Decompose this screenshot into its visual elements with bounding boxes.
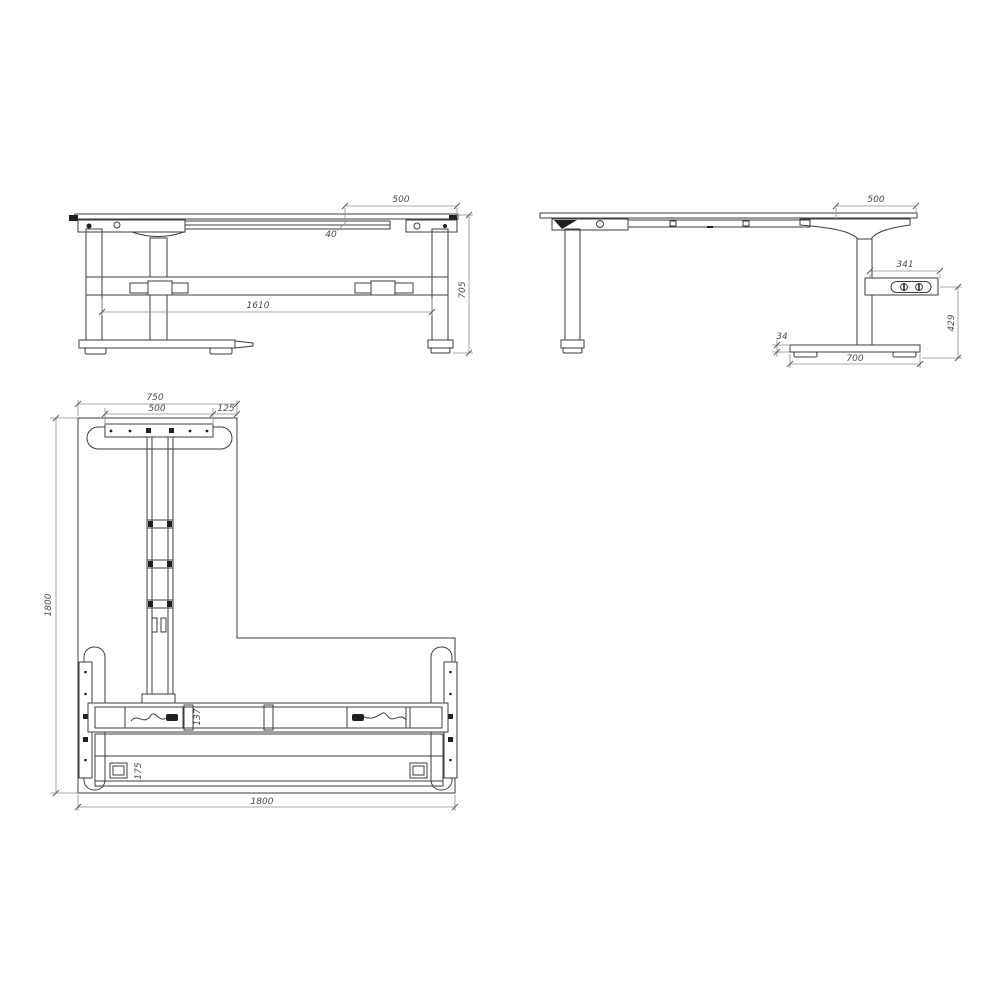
dim-label-plan-rail: 175 [134, 762, 144, 779]
plan-dim-width: 1800 [75, 795, 458, 811]
front-dim-frame: 40 [325, 221, 347, 240]
screw-dot-icon [83, 737, 88, 742]
side-top-frame [552, 219, 910, 239]
screw-dot-icon [129, 430, 132, 433]
front-desktop [75, 214, 458, 219]
plan-column-divider [147, 560, 173, 568]
plan-rail-bracket [110, 763, 127, 778]
side-dim-box-floor: 429 [922, 284, 962, 361]
screw-hole-icon [597, 221, 604, 228]
screw-dot-icon [448, 737, 453, 742]
plan-column-clip [161, 618, 166, 632]
plan-column-clip [152, 618, 157, 632]
screw-dot-icon [84, 759, 87, 762]
plan-rail-bracket [410, 763, 427, 778]
dim-label-side-box-floor: 429 [947, 314, 957, 331]
dim-label-plan-offset: 125 [217, 404, 234, 414]
plan-main-beam: 137 [88, 703, 448, 732]
dim-label-plan-width: 1800 [251, 797, 274, 807]
screw-dot-icon [169, 428, 174, 433]
side-leg-left [565, 229, 580, 340]
plan-dim-bracket: 500 [102, 404, 216, 425]
front-top-frame [78, 220, 457, 237]
front-dim-span: 1610 [99, 298, 435, 316]
screw-dot-icon [87, 224, 92, 229]
dim-label-side-foot-length: 700 [846, 354, 863, 364]
front-corner-mark-left [69, 215, 78, 221]
side-dim-box-width: 341 [867, 260, 943, 278]
front-dim-overhang: 500 [342, 195, 460, 220]
side-view: 500 341 429 34 [540, 195, 962, 368]
drawing-canvas: 500 40 1610 705 [0, 0, 1000, 1000]
screw-dot-icon [443, 224, 447, 228]
side-control-box [865, 278, 938, 295]
plan-return-column [142, 437, 175, 703]
screw-dot-icon [189, 430, 192, 433]
plan-column-cap [142, 694, 175, 703]
front-crossbar [86, 277, 448, 295]
screw-dot-icon [110, 430, 113, 433]
plan-desktop-outline [78, 418, 455, 793]
dim-label-side-box-width: 341 [896, 260, 913, 270]
front-foot-left [79, 340, 253, 354]
dim-label-side-foot-height: 34 [776, 332, 788, 342]
screw-dot-icon [449, 693, 452, 696]
plan-column-divider [147, 600, 173, 608]
screw-hole-icon [114, 222, 120, 228]
screw-hole-icon [414, 223, 420, 229]
dim-label-plan-beam: 137 [193, 708, 203, 725]
screw-dot-icon [83, 714, 88, 719]
dim-label-front-frame: 40 [325, 230, 337, 240]
dim-label-front-height: 705 [458, 281, 468, 298]
side-leg-mount-curve [800, 219, 910, 239]
side-desktop [540, 213, 917, 218]
side-bracket-wedge [554, 220, 577, 229]
dim-label-plan-arm-width: 750 [146, 393, 163, 403]
dim-label-front-span: 1610 [247, 301, 270, 311]
front-foot-right [428, 340, 453, 353]
side-foot-left [561, 340, 584, 353]
plan-rear-rail: 175 [95, 734, 443, 786]
plan-view: 137 175 750 [44, 393, 458, 811]
screw-dot-icon [146, 428, 151, 433]
front-dim-height: 705 [453, 212, 473, 356]
dim-label-side-overhang: 500 [867, 195, 884, 205]
front-corner-mark-right [449, 215, 457, 220]
screw-dot-icon [206, 430, 209, 433]
plan-dim-offset: 125 [213, 404, 240, 417]
dim-label-front-overhang: 500 [392, 195, 409, 205]
dim-label-plan-depth: 1800 [44, 593, 54, 616]
drawing-sheet: 500 40 1610 705 [0, 0, 1000, 1000]
side-dim-overhang: 500 [833, 195, 919, 219]
screw-dot-icon [84, 693, 87, 696]
screw-dot-icon [448, 714, 453, 719]
side-dim-foot-length: 700 [787, 354, 923, 368]
dim-label-plan-bracket: 500 [148, 404, 165, 414]
screw-dot-icon [84, 671, 87, 674]
plan-dim-depth: 1800 [44, 415, 78, 796]
screw-dot-icon [449, 671, 452, 674]
side-dim-foot-height: 34 [772, 332, 790, 357]
front-leg-mount-curve [132, 232, 184, 237]
front-view: 500 40 1610 705 [69, 195, 473, 356]
plan-top-foot [87, 424, 232, 449]
screw-dot-icon [449, 759, 452, 762]
plan-column-divider [147, 520, 173, 528]
